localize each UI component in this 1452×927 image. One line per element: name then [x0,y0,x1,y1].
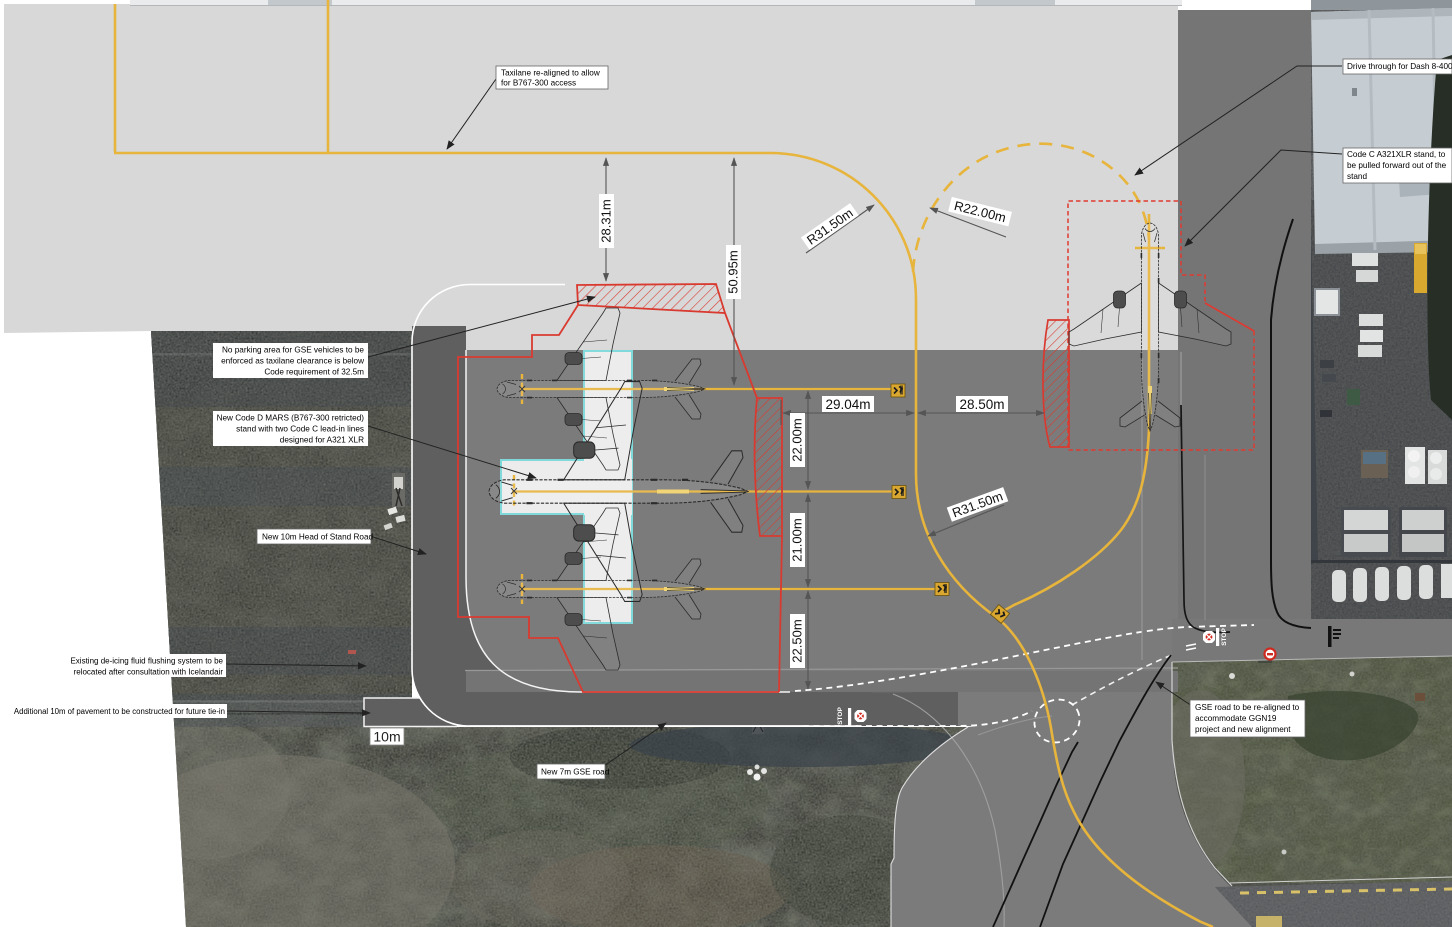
svg-text:21.00m: 21.00m [790,518,805,561]
svg-text:New 10m Head of Stand Road: New 10m Head of Stand Road [262,533,373,542]
svg-text:STOP: STOP [837,707,844,725]
svg-text:project and new alignment: project and new alignment [1195,725,1291,734]
svg-text:New 7m GSE road: New 7m GSE road [541,768,610,777]
svg-text:Drive through for Dash 8-400: Drive through for Dash 8-400 [1347,62,1452,71]
svg-text:28.50m: 28.50m [959,397,1004,412]
svg-text:22.00m: 22.00m [790,418,805,461]
svg-text:28.31m: 28.31m [599,199,614,242]
svg-text:Existing de-icing fluid flushi: Existing de-icing fluid flushing system … [70,657,223,666]
svg-text:designed for A321 XLR: designed for A321 XLR [280,436,364,445]
svg-text:relocated after consultation w: relocated after consultation with Icelan… [74,668,224,677]
svg-text:STOP: STOP [1221,628,1228,646]
svg-text:New Code D MARS (B767-300 retr: New Code D MARS (B767-300 retricted) [217,414,365,423]
svg-text:22.50m: 22.50m [790,619,805,662]
svg-text:stand: stand [1347,172,1367,181]
svg-text:Code requirement of 32.5m: Code requirement of 32.5m [264,368,364,377]
svg-text:50.95m: 50.95m [726,250,741,293]
svg-text:No parking area for GSE vehicl: No parking area for GSE vehicles to be [222,346,364,355]
svg-text:GSE road to be re-aligned to: GSE road to be re-aligned to [1195,703,1300,712]
svg-text:29.04m: 29.04m [825,397,870,412]
svg-text:accommodate GGN19: accommodate GGN19 [1195,714,1277,723]
svg-text:Code C A321XLR stand, to: Code C A321XLR stand, to [1347,150,1446,159]
svg-text:Taxilane re-aligned to allow: Taxilane re-aligned to allow [501,69,600,78]
svg-text:stand with two Code C lead-in: stand with two Code C lead-in lines [236,425,364,434]
svg-text:Additional 10m of pavement to: Additional 10m of pavement to be constru… [14,707,225,716]
svg-text:enforced as taxilane clearance: enforced as taxilane clearance is below [221,357,364,366]
svg-text:for B767-300 access: for B767-300 access [501,79,576,88]
svg-text:be pulled forward out of the: be pulled forward out of the [1347,161,1447,170]
svg-text:10m: 10m [373,729,400,745]
